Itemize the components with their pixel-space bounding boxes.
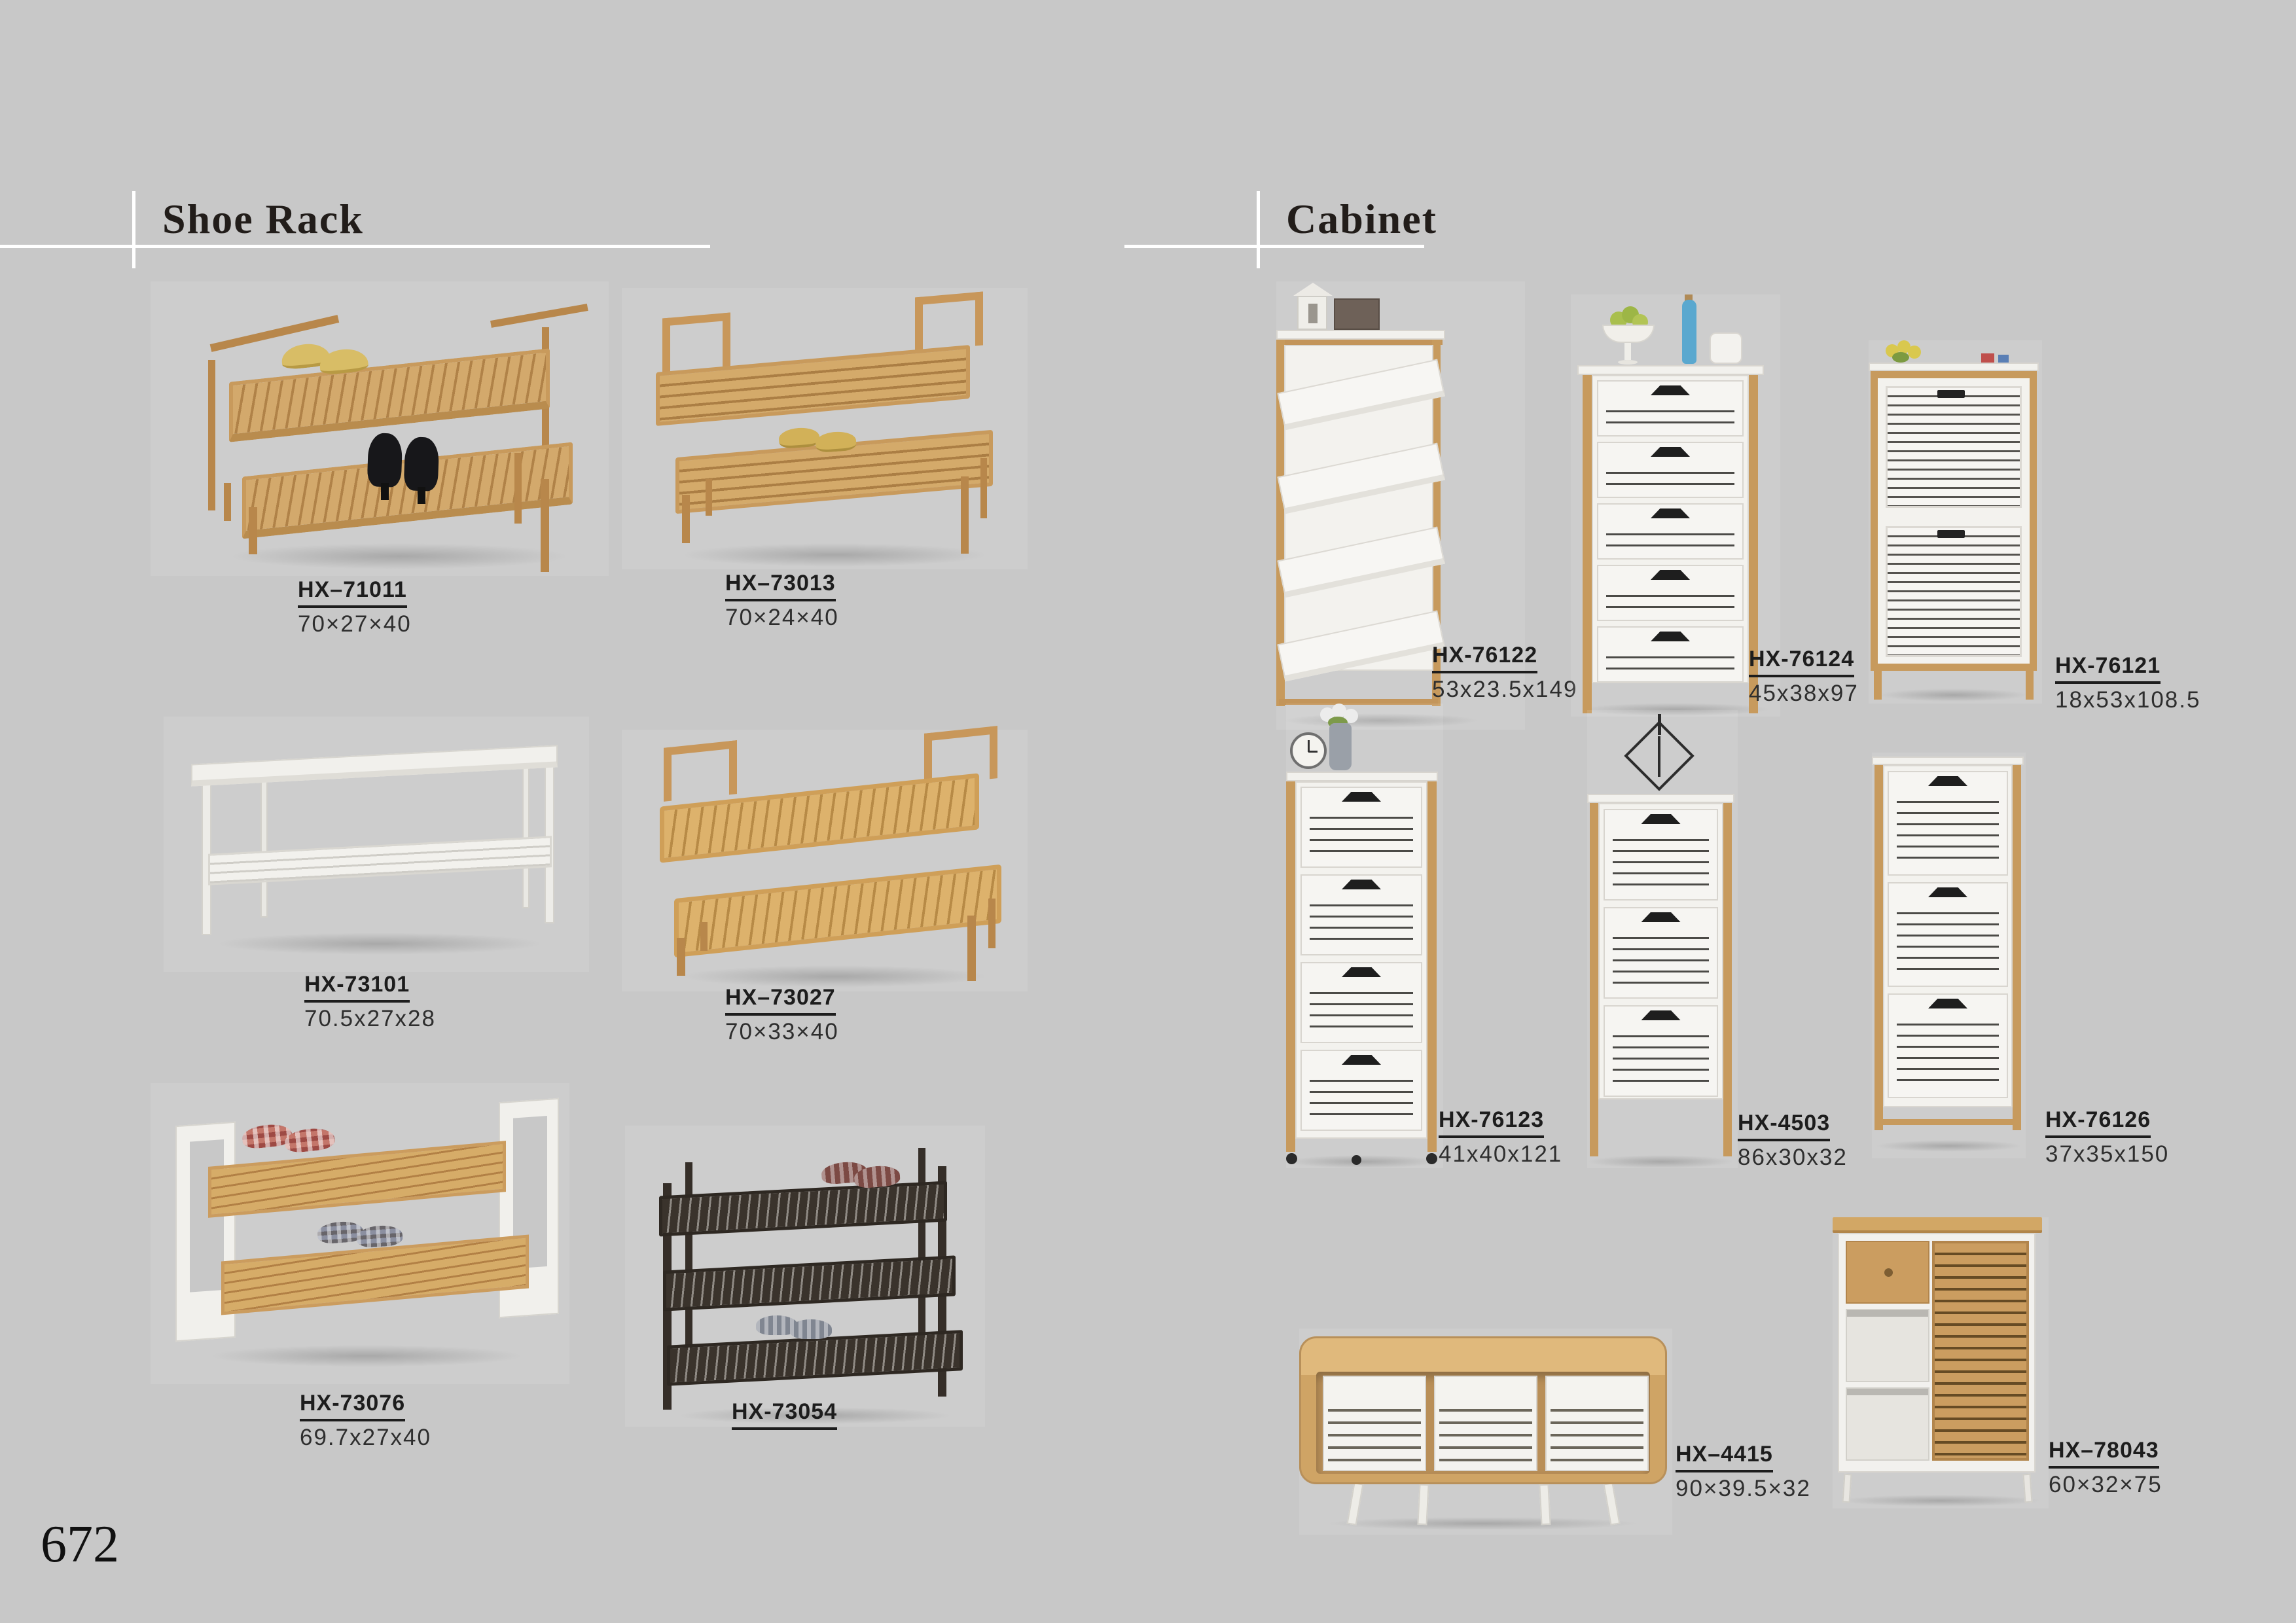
blue-bottle [1682,300,1696,364]
product-size: 60×32×75 [2049,1472,2162,1498]
drawer [1604,1005,1718,1097]
lantern [1297,296,1327,330]
cabinet-top [1869,363,2039,371]
door-handle [1928,887,1967,897]
product-label: HX-76126 37x35x150 [2045,1107,2169,1168]
drawer [1597,380,1744,437]
drawer-slats [1310,1071,1413,1123]
rack-leg [541,479,549,572]
product-code: HX–4415 [1676,1442,1773,1472]
rack-post [208,360,215,510]
rack-shelf [663,1255,956,1311]
product-size: 69.7x27x40 [300,1425,431,1451]
flip-door [1888,882,2008,987]
drawer-slats [1613,928,1709,991]
slatted-basket [1434,1376,1537,1471]
heel [381,483,389,500]
product-card-hx-4503: HX-4503 86x30x32 [1587,710,1836,1171]
flower [1908,346,1921,359]
bench-top [191,745,558,786]
drawer [1597,503,1744,560]
drawer-handle [1651,632,1690,641]
shadow [1286,1155,1440,1168]
drawer [1597,626,1744,683]
product-label: HX-73101 70.5x27x28 [304,972,436,1032]
product-code: HX-76122 [1432,643,1537,673]
wood-rail [1279,340,1443,345]
flip-door [1888,993,2008,1098]
cabinet-post [1286,781,1295,1152]
product-label: HX–73027 70×33×40 [725,985,839,1045]
clock-hand [1308,751,1318,753]
cabinet-post [1590,803,1598,1156]
cabinet-leg [1874,671,1882,700]
product-label: HX–71011 70×27×40 [298,577,412,637]
door-handle [1928,776,1967,786]
product-label: HX–78043 60×32×75 [2049,1438,2162,1498]
product-card-hx-73027: HX–73027 70×33×40 [622,730,1028,1031]
open-shelf-cubby [1846,1387,1929,1461]
slatted-basket [1545,1376,1649,1471]
drawer [1300,1050,1422,1131]
product-card-hx-73076: HX-73076 69.7x27x40 [151,1083,569,1440]
shadow [681,965,988,988]
product-code: HX-76123 [1439,1107,1544,1138]
shadow [1878,688,2029,702]
shadow [229,543,569,569]
drawer-handle [1342,967,1381,977]
cabinet-top [1286,772,1438,781]
product-card-hx-76121: HX-76121 18x53x108.5 [1869,340,2183,707]
rack-handle [664,740,737,802]
product-card-hx-78043: HX–78043 60×32×75 [1833,1217,2147,1512]
section-title-cabinet: Cabinet [1286,195,1437,243]
caster-wheel [1286,1153,1297,1164]
rack-leg [988,899,996,948]
black-heel-shoe [367,433,403,488]
drawer-slats [1606,586,1734,613]
small-decor [1998,355,2009,363]
drawer-handle [1651,447,1690,457]
cabinet-post [1723,803,1732,1156]
product-size: 90×39.5×32 [1676,1476,1811,1502]
rack-shelf-top [229,348,550,442]
product-code: HX–71011 [298,577,407,608]
shoe-rack-header-underline [0,245,710,248]
lantern-roof [1293,283,1333,296]
black-heel-shoe [404,437,440,491]
heel [418,487,425,504]
plaid-slipper [356,1224,403,1249]
drawer [1604,907,1718,999]
product-photo [1587,710,1738,1168]
clock [1290,732,1327,769]
product-card-hx-73013: HX–73013 70×24×40 [622,288,1028,615]
product-code: HX-4503 [1738,1111,1830,1141]
product-code: HX–73027 [725,985,836,1016]
product-photo [1286,704,1443,1168]
product-photo [622,730,1028,991]
drawer-handle [1641,814,1681,824]
product-card-hx-71011: HX–71011 70×27×40 [151,281,609,628]
section-title-shoe-rack: Shoe Rack [162,195,364,243]
product-photo [1299,1329,1672,1535]
product-card-hx-76122: HX-76122 53x23.5x149 [1276,281,1558,733]
cabinet-post [2013,765,2021,1130]
basket-slats [1328,1399,1421,1465]
cabinet-header-vertical-line [1257,191,1260,268]
shadow [1587,1155,1734,1168]
drawer-handle [1342,792,1381,802]
product-label: HX-76124 45x38x97 [1749,647,1859,707]
lantern-window [1308,304,1318,323]
product-label: HX-76122 53x23.5x149 [1432,643,1577,703]
product-code: HX-73054 [732,1399,837,1430]
console-leg [1539,1484,1551,1525]
door-slats [1897,1014,1999,1090]
cabinet-top [1276,330,1445,340]
basket-slats [1439,1399,1532,1465]
bench-shelf-slatted [208,836,552,885]
product-code: HX–78043 [2049,1438,2159,1469]
shadow [216,933,543,955]
shadow [1839,1495,2042,1507]
louvered-door [1886,386,2022,508]
rack-leg [682,495,690,543]
rack-shelf-top [208,1141,506,1218]
product-card-hx-76126: HX-76126 37x35x150 [1872,753,2153,1162]
shoe-rack-header-vertical-line [132,191,135,268]
cabinet-post [1427,781,1437,1152]
drawer-slats [1606,401,1734,429]
product-card-hx-73101: HX-73101 70.5x27x28 [164,717,589,1024]
rack-rail [490,304,588,328]
slatted-basket [1323,1376,1426,1471]
bowl-stem [1624,343,1631,360]
product-photo [151,1083,569,1384]
wood-rail [1874,1119,2021,1125]
drawer-handle [1641,912,1681,922]
product-label: HX–73013 70×24×40 [725,571,839,631]
product-size: 70×24×40 [725,605,839,631]
product-photo [151,281,609,576]
flower-leaves [1892,352,1909,363]
wood-drawer [1846,1241,1929,1304]
door-slats [1897,903,1999,979]
drawer-slats [1310,983,1413,1035]
door-slats [1897,792,1999,868]
rack-shelf-bottom [674,865,1001,958]
product-code: HX-76124 [1749,647,1854,677]
rack-handle [915,291,983,351]
rack-shelf [659,1181,947,1236]
rack-leg [967,916,976,981]
door-handle [1928,999,1967,1008]
product-size: 70.5x27x28 [304,1006,436,1032]
cabinet-leg [2026,671,2034,700]
drawer-slats [1606,463,1734,490]
product-code: HX-73076 [300,1391,405,1421]
shadow [1325,1517,1640,1530]
drawer-handle [1342,1055,1381,1065]
product-size: 41x40x121 [1439,1141,1562,1168]
product-photo [1872,753,2026,1158]
product-size: 70×27×40 [298,611,412,637]
product-size: 18x53x108.5 [2055,687,2200,713]
product-code: HX-76126 [2045,1107,2151,1138]
product-photo [164,717,589,972]
rack-leg [700,922,708,951]
drawer [1300,962,1422,1043]
drawer-slats [1606,647,1734,675]
product-label: HX-76123 41x40x121 [1439,1107,1562,1168]
rack-leg [677,938,685,976]
rack-leg [224,483,231,521]
cabinet-post [1874,765,1883,1130]
product-card-hx-73054: HX-73054 [625,1126,985,1427]
drawer-slats [1613,1026,1709,1089]
catalog-page: Shoe Rack Cabinet HX–71011 70×27×40 [0,0,2296,1623]
drawer-knob [1884,1268,1893,1277]
drawer [1300,787,1422,868]
drawer [1597,565,1744,621]
product-label: HX-4503 86x30x32 [1738,1111,1848,1171]
rack-leg [249,507,257,554]
white-jar [1710,332,1742,364]
product-code: HX-73101 [304,972,410,1003]
cabinet-top [1587,794,1734,803]
product-card-hx-4415: HX–4415 90×39.5×32 [1299,1329,1790,1538]
product-code: HX-76121 [2055,653,2161,684]
drawer-slats [1310,808,1413,860]
vase [1329,723,1352,770]
bench-leg [260,770,268,918]
plaid-slipper [790,1319,832,1339]
bowl-foot [1618,360,1638,365]
cabinet-post [1583,375,1592,713]
product-label: HX-73076 69.7x27x40 [300,1391,431,1451]
louvered-door [1932,1241,2029,1461]
product-card-hx-76123: HX-76123 41x40x121 [1286,704,1541,1171]
product-photo [1833,1217,2049,1508]
product-photo [622,288,1028,569]
product-size: 70×33×40 [725,1019,839,1045]
product-size: 53x23.5x149 [1432,677,1577,703]
shadow [1875,1140,2022,1152]
rack-leg [961,476,969,554]
product-photo [625,1126,985,1427]
product-size: 45x38x97 [1749,681,1859,707]
drawer-slats [1613,830,1709,893]
storage-box [1334,298,1380,330]
drawer-handle [1641,1010,1681,1020]
louvered-door [1886,526,2022,657]
drawer-handle [1651,570,1690,580]
drawer-handle [1651,508,1690,518]
product-label: HX–4415 90×39.5×32 [1676,1442,1811,1502]
page-number: 672 [41,1515,119,1575]
fruit-bowl [1602,325,1655,343]
rack-post [685,1162,692,1370]
drawer-handle [1651,385,1690,395]
bench-leg [522,761,529,908]
shadow [681,543,988,567]
product-size: 86x30x32 [1738,1145,1848,1171]
basket-slats [1551,1399,1643,1465]
cabinet-top [1833,1217,2042,1233]
rack-leg [514,453,522,524]
drawer-slats [1310,895,1413,948]
rack-post [918,1148,925,1357]
small-decor [1981,353,1994,363]
drawer [1300,874,1422,955]
caster-wheel [1426,1153,1437,1164]
drawer [1604,809,1718,901]
shadow [209,1345,524,1367]
drawer-handle [1342,880,1381,889]
rack-handle [662,312,730,372]
door-handle [1937,390,1965,398]
rack-leg [706,479,712,516]
product-size: 37x35x150 [2045,1141,2169,1168]
cabinet-top [1872,757,2024,765]
cabinet-top [1577,365,1764,375]
rack-leg [980,458,987,518]
product-label: HX-73054 [732,1399,837,1433]
flip-door [1888,771,2008,876]
plaid-slipper [283,1126,335,1154]
drawer-slats [1606,524,1734,552]
product-card-hx-76124: HX-76124 45x38x97 [1571,294,1852,717]
door-handle [1937,530,1965,538]
product-label: HX-76121 18x53x108.5 [2055,653,2200,713]
wire-lantern-bar [1658,736,1660,777]
cabinet-header-underline [1124,245,1424,248]
caster-wheel [1352,1155,1361,1165]
product-photo [1869,340,2042,704]
drawer [1597,442,1744,498]
product-code: HX–73013 [725,571,836,601]
cabinet-leg [2022,1474,2032,1503]
open-shelf-cubby [1846,1309,1929,1382]
